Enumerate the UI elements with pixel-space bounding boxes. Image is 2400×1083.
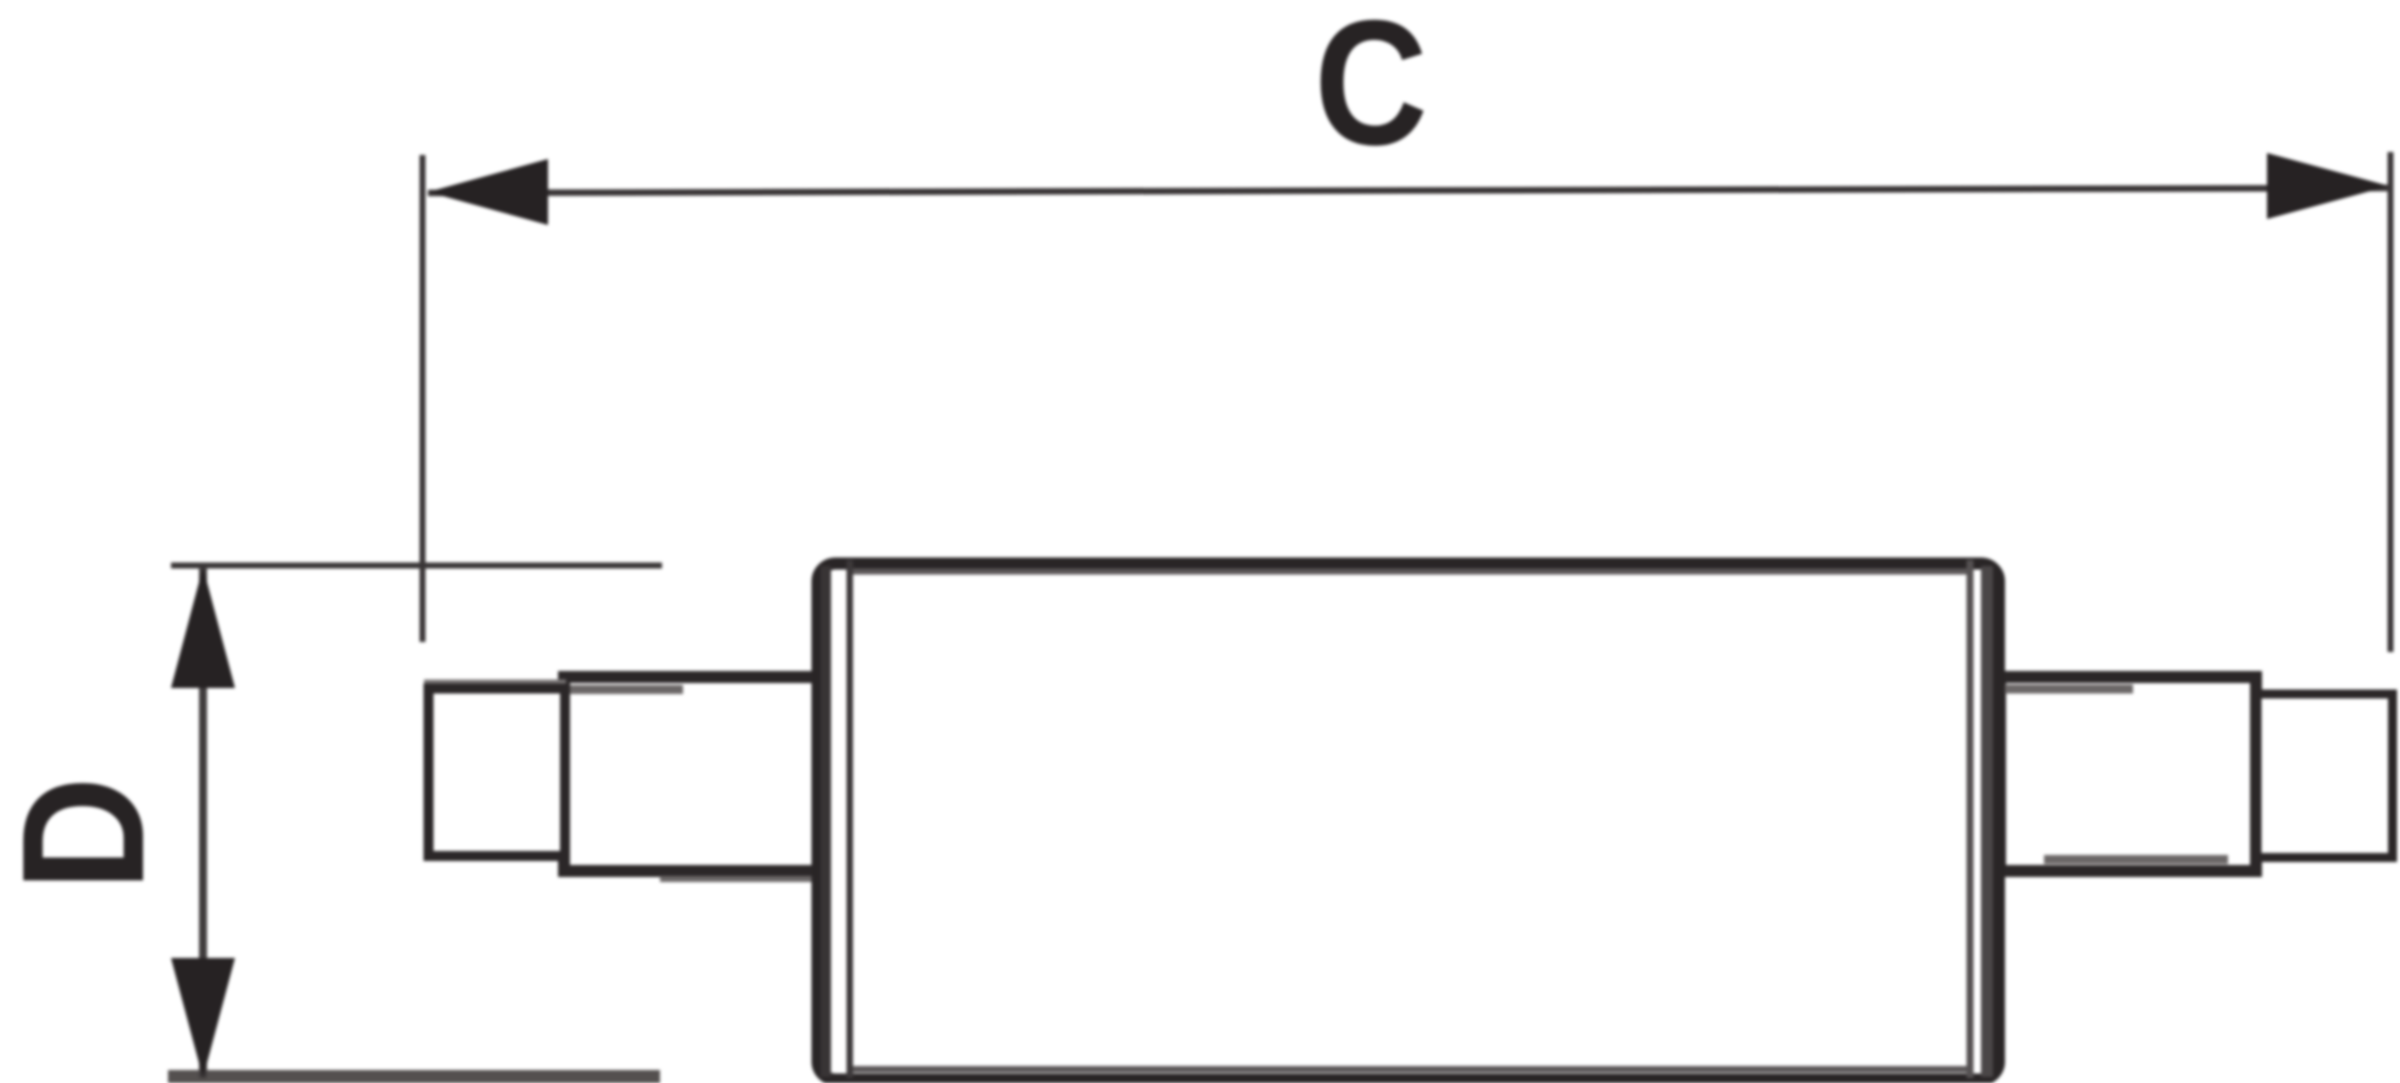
svg-text:D: D [0, 777, 180, 892]
svg-text:C: C [1314, 0, 1428, 182]
